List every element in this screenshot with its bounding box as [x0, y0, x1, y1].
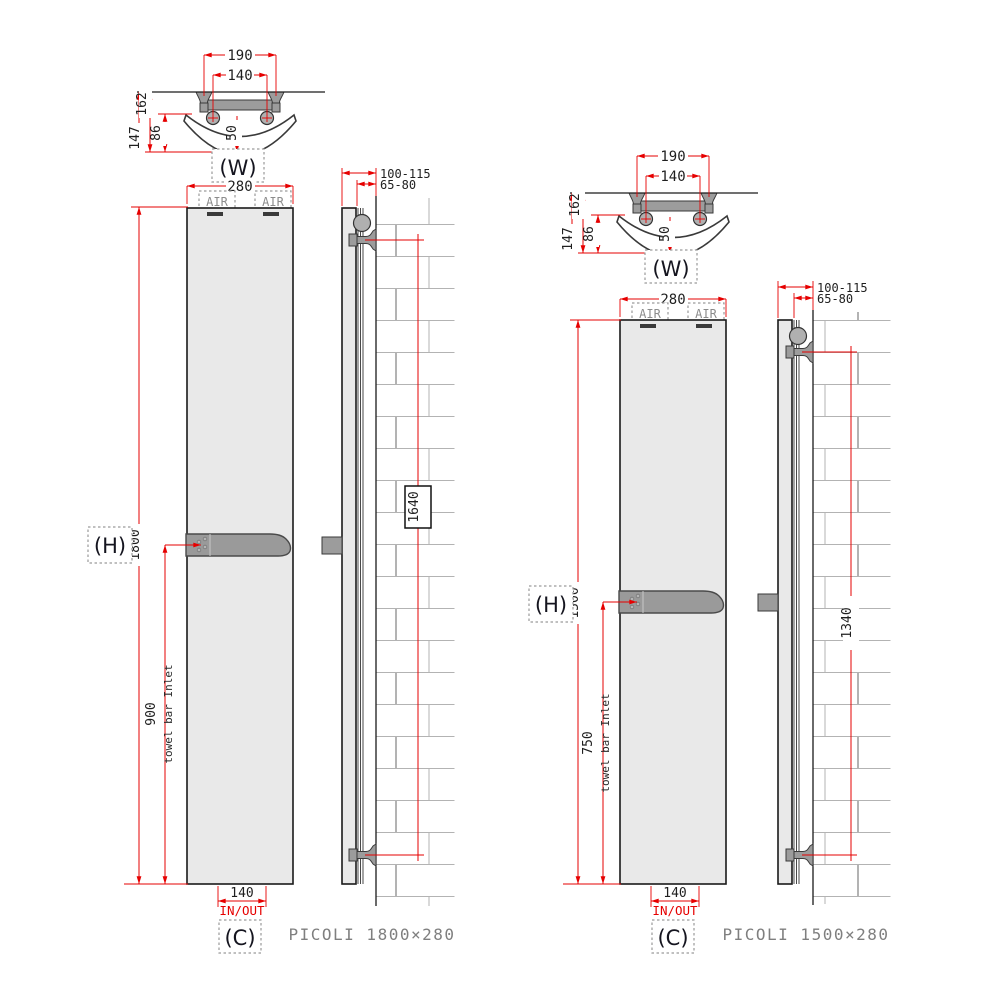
air-slot-left: [207, 212, 223, 216]
detail-view-w: 190 140 162 147 86 50 (W): [128, 48, 325, 182]
towel-bar-inlet-note: towel bar Inlet: [162, 664, 175, 763]
air-label-right: AIR: [262, 195, 284, 209]
technical-drawing-sheet: 190 140 162 147 86 50 (W) 280 AIR AIR: [0, 0, 1000, 1000]
h-label: (H): [94, 534, 126, 558]
bracket-rail: [636, 201, 710, 211]
dim-inout-label: 140: [663, 886, 686, 901]
inout-label: IN/OUT: [219, 903, 265, 918]
dim-bracket-span-label: 1640: [407, 491, 422, 522]
dim-86-label: 86: [582, 226, 597, 242]
dim-147-label: 147: [128, 126, 143, 149]
drawing-picoli-1500x280: 190 140 162 147 86 50 (W) 280 AIR AIR: [529, 149, 891, 953]
dim-wall-gap-label: 65-80: [817, 292, 853, 306]
air-label-left: AIR: [639, 307, 661, 321]
w-label: (W): [219, 156, 256, 180]
w-label: (W): [652, 257, 689, 281]
dim-towel-bar-label: 900: [144, 702, 159, 725]
pipe-end: [354, 215, 371, 232]
side-view: 100-115 65-80 1640: [322, 167, 455, 906]
dim-wall-gap-label: 65-80: [380, 178, 416, 192]
dim-190-label: 190: [660, 149, 685, 165]
drawing-picoli-1800x280: 190 140 162 147 86 50 (W) 280 AIR AIR: [88, 48, 456, 953]
towel-bar-side: [322, 537, 342, 554]
dim-147-label: 147: [561, 227, 576, 250]
dim-86-label: 86: [149, 125, 164, 141]
front-view: 280 AIR AIR 1800 (H) 900 towel: [88, 179, 293, 953]
air-slot-right: [696, 324, 712, 328]
dim-50-label: 50: [225, 125, 240, 141]
dim-162-label: 162: [568, 193, 583, 216]
air-label-right: AIR: [695, 307, 717, 321]
inout-label: IN/OUT: [652, 903, 698, 918]
dim-inout-label: 140: [230, 886, 253, 901]
front-view: 280 AIR AIR 1500 (H) 750 towel bar Inl: [529, 292, 726, 953]
radiator-drawing-svg: 190 140 162 147 86 50 (W) 280 AIR AIR: [0, 0, 1000, 1000]
detail-view-w: 190 140 162 147 86 50 (W): [561, 149, 758, 283]
air-slot-left: [640, 324, 656, 328]
side-panel: [342, 208, 356, 884]
drawing-title: PICOLI 1800×280: [289, 925, 456, 944]
pipe-end: [790, 328, 807, 345]
side-panel: [778, 320, 792, 884]
drawing-title: PICOLI 1500×280: [723, 925, 890, 944]
dim-190-label: 190: [227, 48, 252, 64]
towel-bar-side: [758, 594, 778, 611]
c-label: (C): [657, 926, 688, 950]
air-slot-right: [263, 212, 279, 216]
towel-bar: [186, 534, 291, 556]
dim-towel-bar-label: 750: [581, 731, 596, 754]
dim-162-label: 162: [135, 92, 150, 115]
side-view: 100-115 65-80 1340: [758, 281, 891, 905]
c-label: (C): [224, 926, 255, 950]
dim-140-label: 140: [660, 169, 685, 185]
brick-wall: [377, 198, 455, 906]
bracket-rail: [203, 100, 277, 110]
dim-50-label: 50: [658, 226, 673, 242]
air-label-left: AIR: [206, 195, 228, 209]
h-label: (H): [535, 593, 567, 617]
dim-140-label: 140: [227, 68, 252, 84]
towel-bar-inlet-note: towel bar Inlet: [599, 693, 612, 792]
dim-bracket-span-label: 1340: [840, 607, 855, 638]
